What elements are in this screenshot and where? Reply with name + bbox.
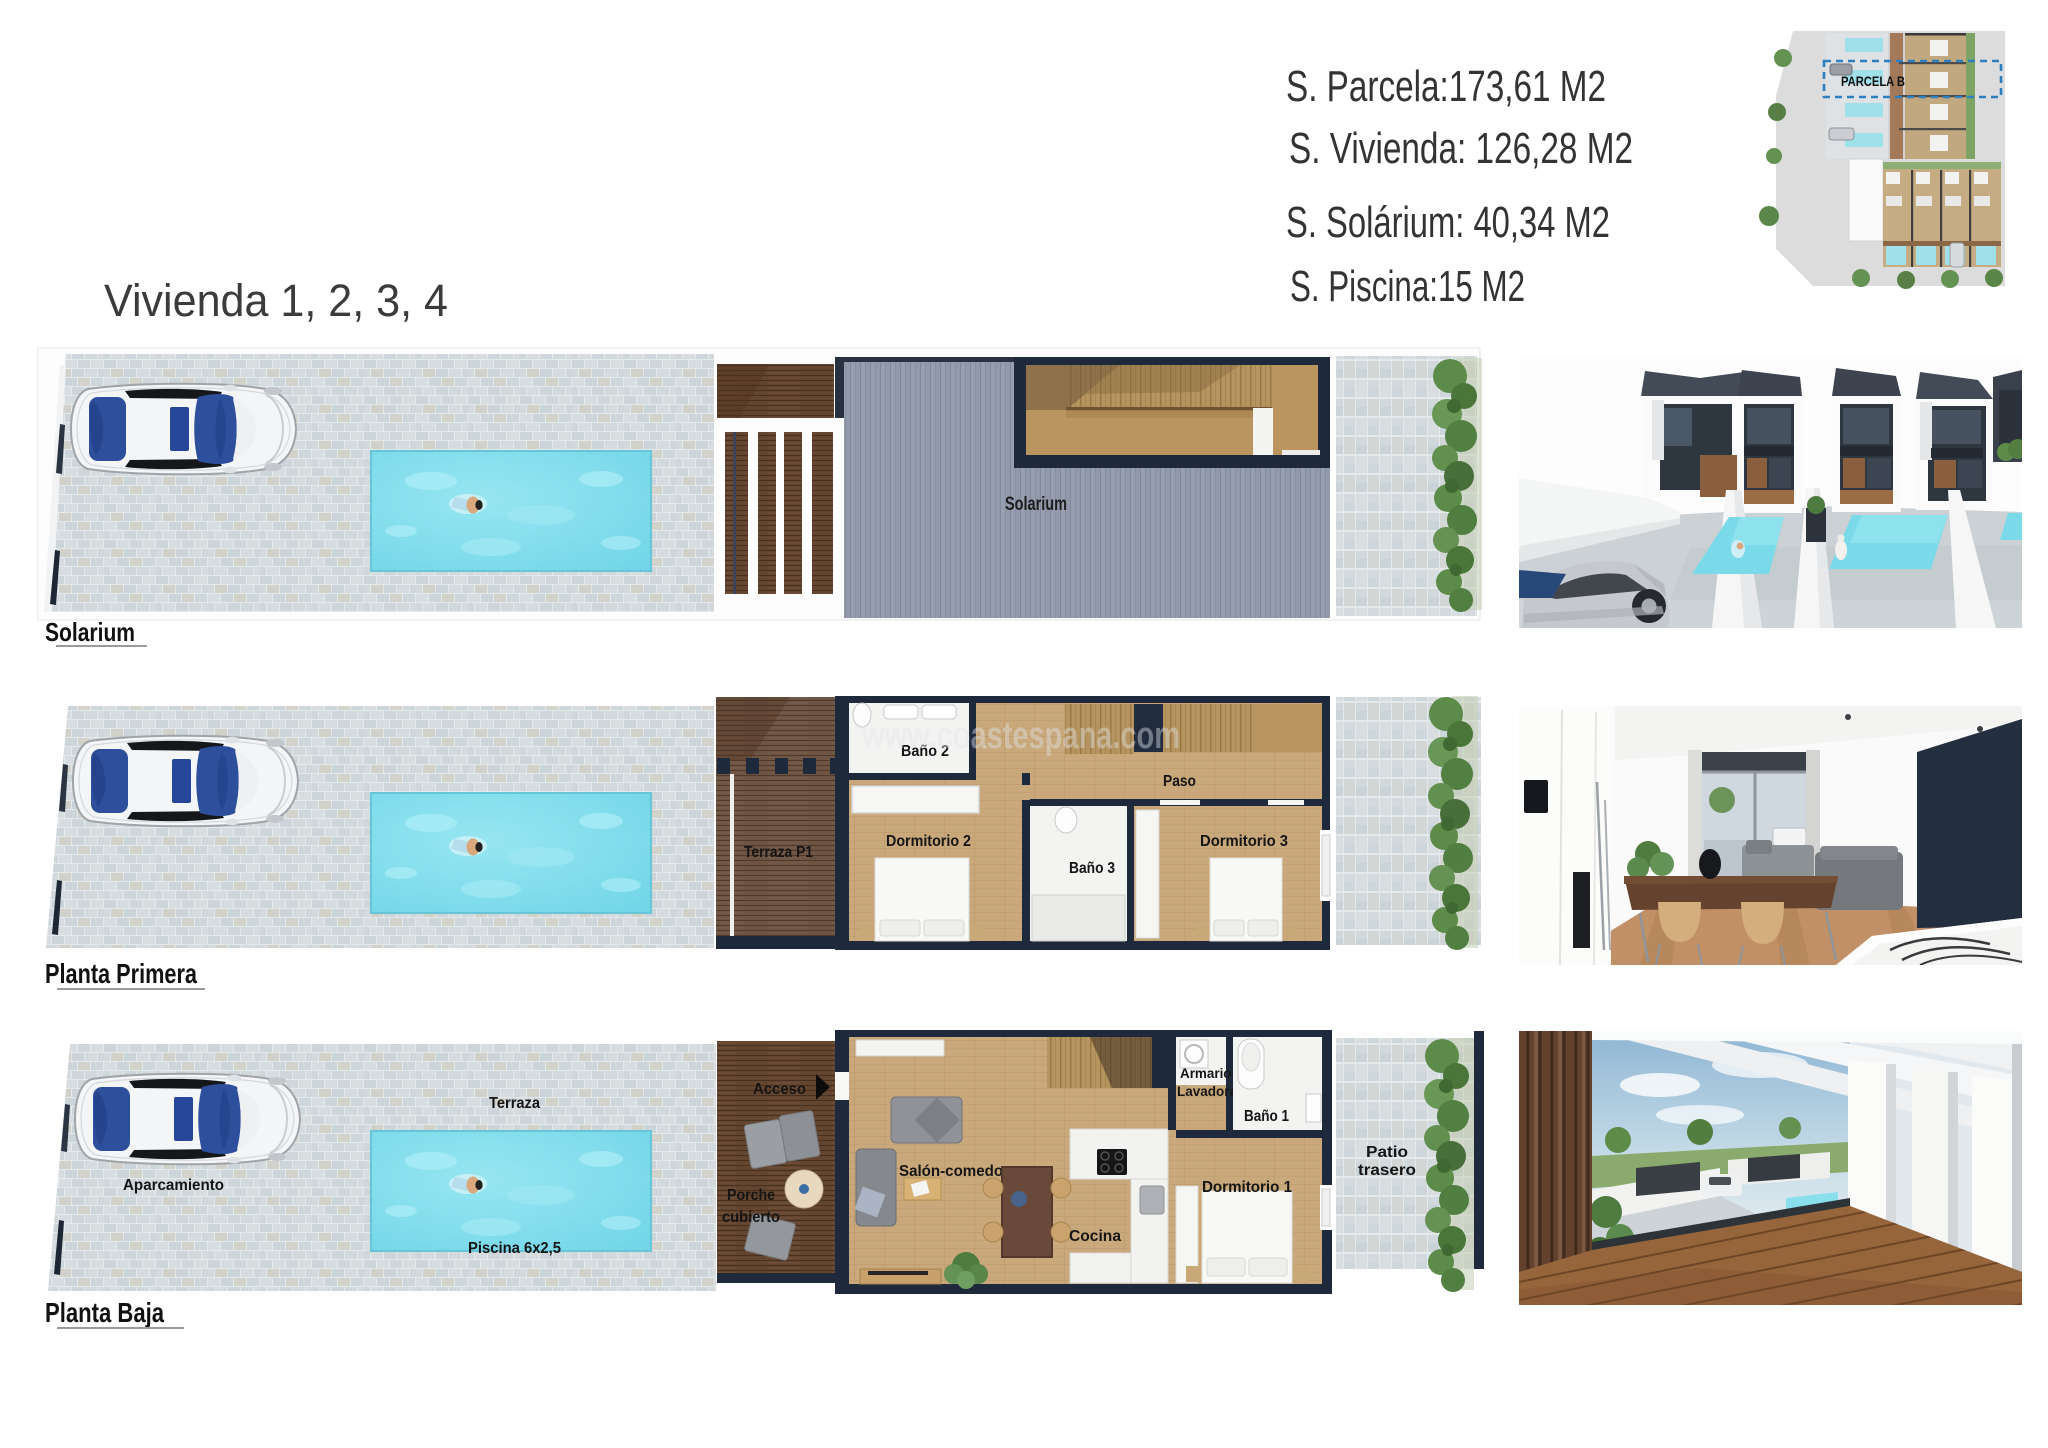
- svg-text:Solarium: Solarium: [1005, 494, 1067, 515]
- svg-text:Solarium: Solarium: [45, 617, 135, 647]
- svg-text:Cocina: Cocina: [1069, 1228, 1121, 1245]
- svg-text:Dormitorio 1: Dormitorio 1: [1202, 1179, 1292, 1196]
- svg-text:S. Parcela:173,61 M2: S. Parcela:173,61 M2: [1286, 62, 1606, 111]
- svg-text:S. Piscina:15 M2: S. Piscina:15 M2: [1290, 262, 1525, 311]
- svg-text:www.coastespana.com: www.coastespana.com: [861, 715, 1180, 757]
- svg-text:Salón-comedor: Salón-comedor: [899, 1163, 1009, 1180]
- svg-text:Planta Primera: Planta Primera: [45, 958, 197, 989]
- svg-text:cubierto: cubierto: [722, 1209, 780, 1226]
- svg-text:Armario-: Armario-: [1180, 1065, 1236, 1081]
- svg-text:Piscina 6x2,5: Piscina 6x2,5: [468, 1240, 561, 1257]
- svg-text:Dormitorio 3: Dormitorio 3: [1200, 833, 1288, 850]
- svg-text:Patio: Patio: [1366, 1144, 1408, 1161]
- svg-text:Acceso: Acceso: [753, 1081, 806, 1098]
- svg-text:PARCELA B: PARCELA B: [1841, 73, 1905, 89]
- svg-text:Baño 3: Baño 3: [1069, 860, 1115, 877]
- svg-text:Terraza P1: Terraza P1: [744, 844, 813, 861]
- svg-text:Vivienda 1, 2, 3, 4: Vivienda 1, 2, 3, 4: [104, 275, 448, 326]
- svg-text:S. Solárium: 40,34 M2: S. Solárium: 40,34 M2: [1286, 198, 1610, 247]
- svg-text:Porche: Porche: [727, 1187, 775, 1204]
- svg-text:Paso: Paso: [1163, 773, 1196, 790]
- svg-text:Terraza: Terraza: [489, 1095, 540, 1112]
- svg-text:Baño 1: Baño 1: [1244, 1108, 1289, 1125]
- svg-text:Aparcamiento: Aparcamiento: [123, 1177, 224, 1194]
- svg-text:Lavadora: Lavadora: [1177, 1083, 1237, 1099]
- svg-text:Planta Baja: Planta Baja: [45, 1297, 164, 1328]
- svg-text:trasero: trasero: [1358, 1162, 1416, 1179]
- svg-text:S. Vivienda: 126,28 M2: S. Vivienda: 126,28 M2: [1289, 124, 1633, 173]
- svg-text:Dormitorio 2: Dormitorio 2: [886, 833, 971, 850]
